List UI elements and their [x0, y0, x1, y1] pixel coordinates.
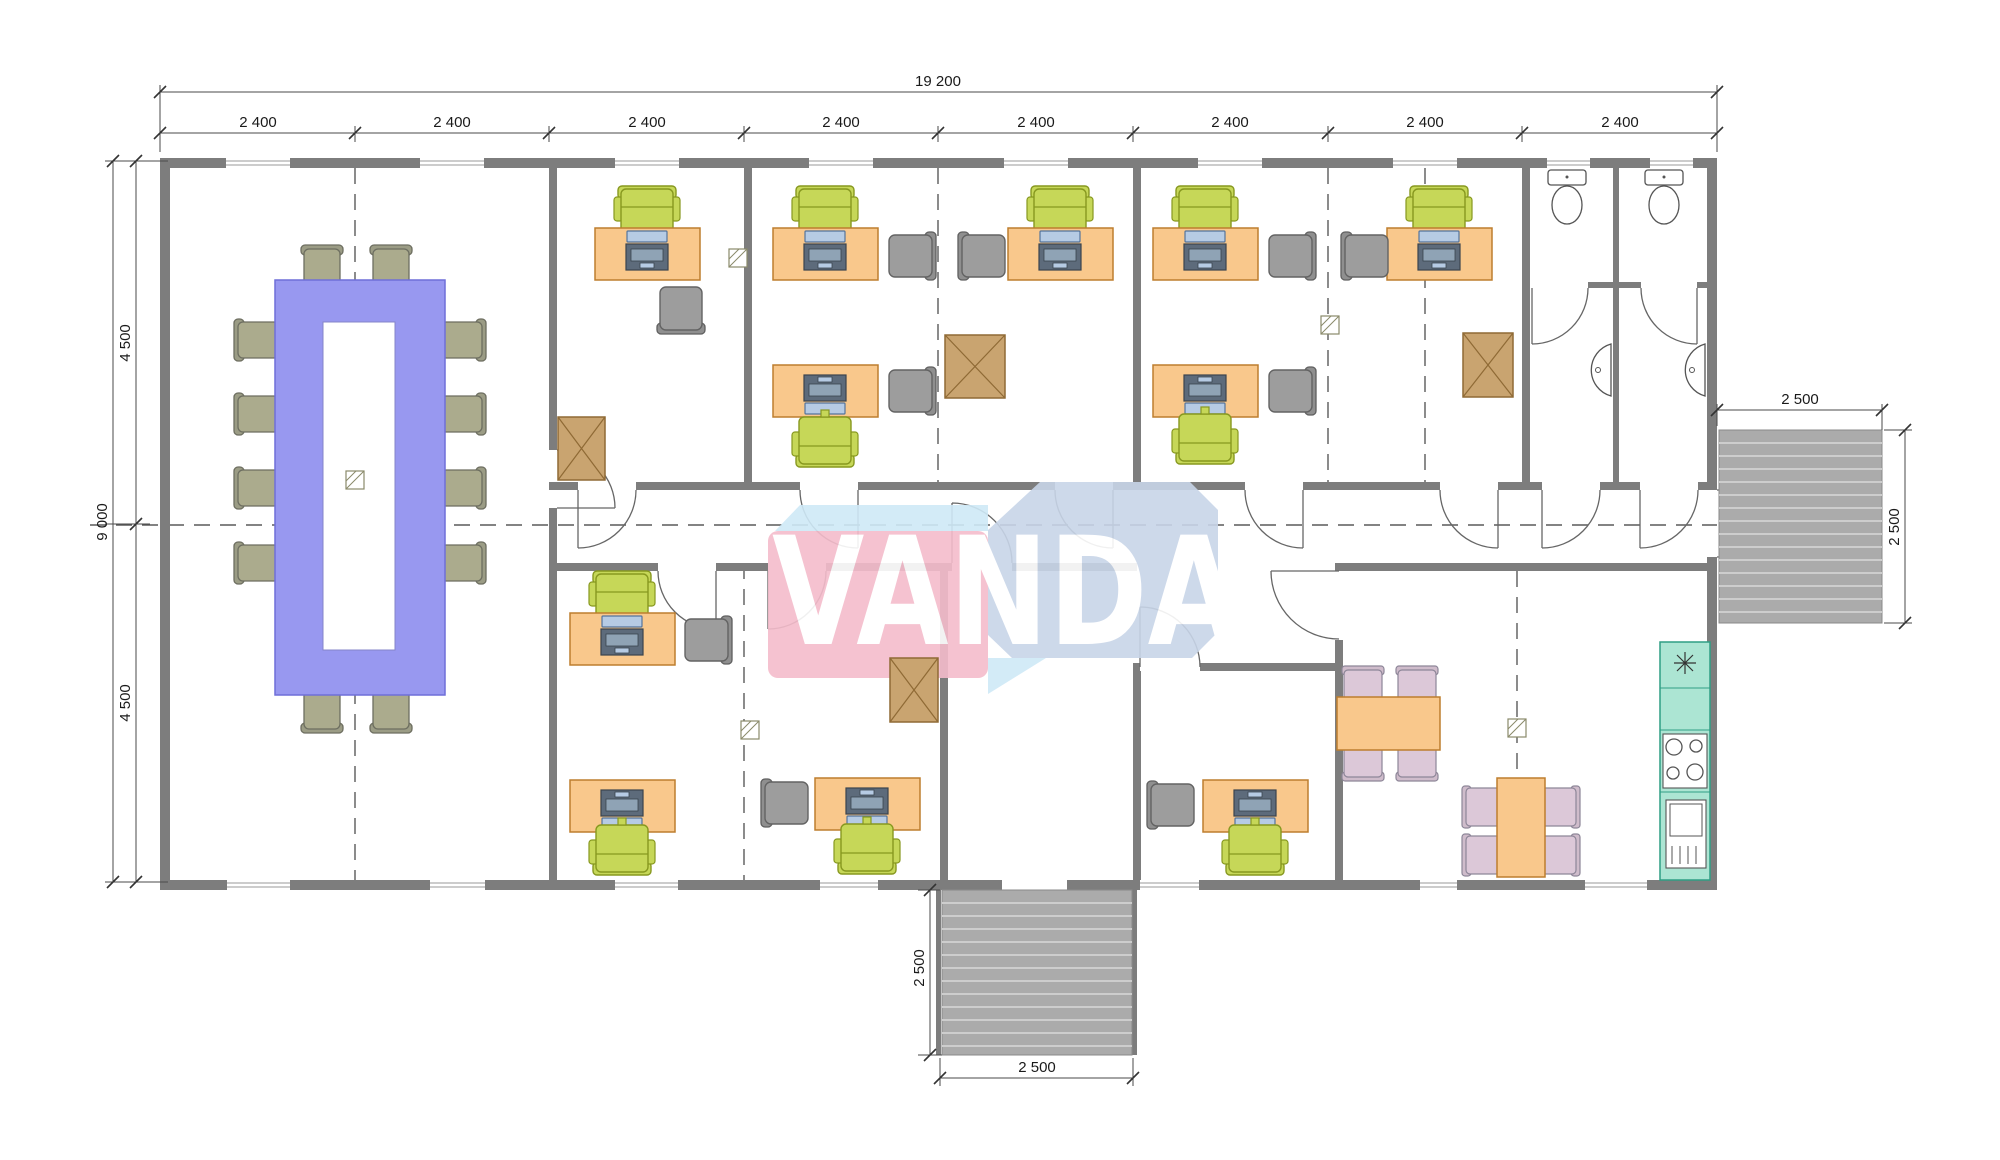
dim-module-2: 2 400	[433, 114, 471, 131]
fridge-icon	[1666, 800, 1706, 868]
computer-icon	[1418, 231, 1460, 270]
right-deck	[1719, 430, 1882, 623]
axis-marker-icon	[1508, 719, 1526, 737]
computer-icon	[1039, 231, 1081, 270]
conference-chair-icon	[441, 467, 486, 509]
office-chair-icon	[1222, 818, 1288, 875]
crate-icon	[890, 658, 938, 722]
dim-deck-width: 2 500	[1781, 391, 1819, 408]
axis-marker-icon	[729, 249, 747, 267]
guest-chair-icon	[889, 232, 936, 280]
computer-icon	[601, 616, 643, 655]
office-chair-icon	[1172, 407, 1238, 464]
dim-module-7: 2 400	[1406, 114, 1444, 131]
sink-star-icon	[1674, 652, 1696, 674]
floor-plan-page: VANDA	[0, 0, 2000, 1160]
crate-icon	[1463, 333, 1513, 397]
stove-icon	[1663, 734, 1707, 788]
conference-chair-icon	[234, 467, 279, 509]
dining-table-icon	[1337, 697, 1440, 750]
dim-porch-height: 2 500	[911, 949, 928, 987]
axis-marker-icon	[741, 721, 759, 739]
top-offices	[558, 186, 1513, 480]
dim-module-8: 2 400	[1601, 114, 1639, 131]
conference-chair-icon	[441, 393, 486, 435]
computer-icon	[804, 231, 846, 270]
dim-module-6: 2 400	[1211, 114, 1249, 131]
guest-chair-icon	[1341, 232, 1388, 280]
dim-deck-height: 2 500	[1886, 508, 1903, 546]
door-office-5	[1440, 490, 1498, 548]
axis-marker-icon	[346, 471, 364, 489]
dim-module-3: 2 400	[628, 114, 666, 131]
guest-chair-icon	[1269, 367, 1316, 415]
office-chair-icon	[834, 817, 900, 874]
conference-chair-icon	[441, 319, 486, 361]
stairs-icon	[942, 890, 1132, 1055]
conference-chair-icon	[441, 542, 486, 584]
toilet-icon	[1548, 170, 1586, 224]
kitchen	[1660, 642, 1710, 880]
door-wc-stall-1	[1532, 288, 1588, 344]
dining-area	[1337, 666, 1580, 877]
guest-chair-icon	[657, 287, 705, 334]
dining-table-icon	[1497, 778, 1545, 877]
conference-chair-icon	[234, 319, 279, 361]
office-chair-icon	[589, 818, 655, 875]
guest-chair-icon	[1269, 232, 1316, 280]
door-wc-2	[1640, 490, 1698, 548]
floor-plan-drawing: VANDA	[0, 0, 2000, 1160]
guest-chair-icon	[958, 232, 1005, 280]
door-office-1	[578, 490, 636, 548]
sink-icon	[1685, 344, 1705, 396]
vanda-watermark: VANDA	[768, 482, 1240, 694]
door-dining	[1271, 571, 1339, 639]
stairs-icon	[1719, 430, 1882, 623]
bottom-porch	[942, 890, 1132, 1055]
dim-overall-width: 19 200	[915, 73, 961, 90]
sink-icon	[1591, 344, 1611, 396]
guest-chair-icon	[889, 367, 936, 415]
door-wc-stall-2	[1641, 288, 1697, 344]
dim-left-total: 9 000	[94, 503, 111, 541]
office-chair-icon	[792, 410, 858, 467]
dim-module-5: 2 400	[1017, 114, 1055, 131]
crate-icon	[945, 335, 1005, 398]
dim-left-bottom: 4 500	[117, 684, 134, 722]
door-wc-1	[1542, 490, 1600, 548]
dim-module-4: 2 400	[822, 114, 860, 131]
computer-icon	[626, 231, 668, 270]
crate-icon	[558, 417, 605, 480]
dim-porch-width: 2 500	[1018, 1059, 1056, 1076]
toilet-icon	[1645, 170, 1683, 224]
door-office-4	[1245, 490, 1303, 548]
guest-chair-icon	[1147, 781, 1194, 829]
axis-marker-icon	[1321, 316, 1339, 334]
watermark-text: VANDA	[772, 506, 1240, 680]
dim-module-1: 2 400	[239, 114, 277, 131]
guest-chair-icon	[761, 779, 808, 827]
conference-chair-icon	[234, 542, 279, 584]
conference-chair-icon	[234, 393, 279, 435]
guest-chair-icon	[685, 616, 732, 664]
dim-left-top: 4 500	[117, 324, 134, 362]
computer-icon	[1184, 231, 1226, 270]
computer-icon	[804, 375, 846, 414]
